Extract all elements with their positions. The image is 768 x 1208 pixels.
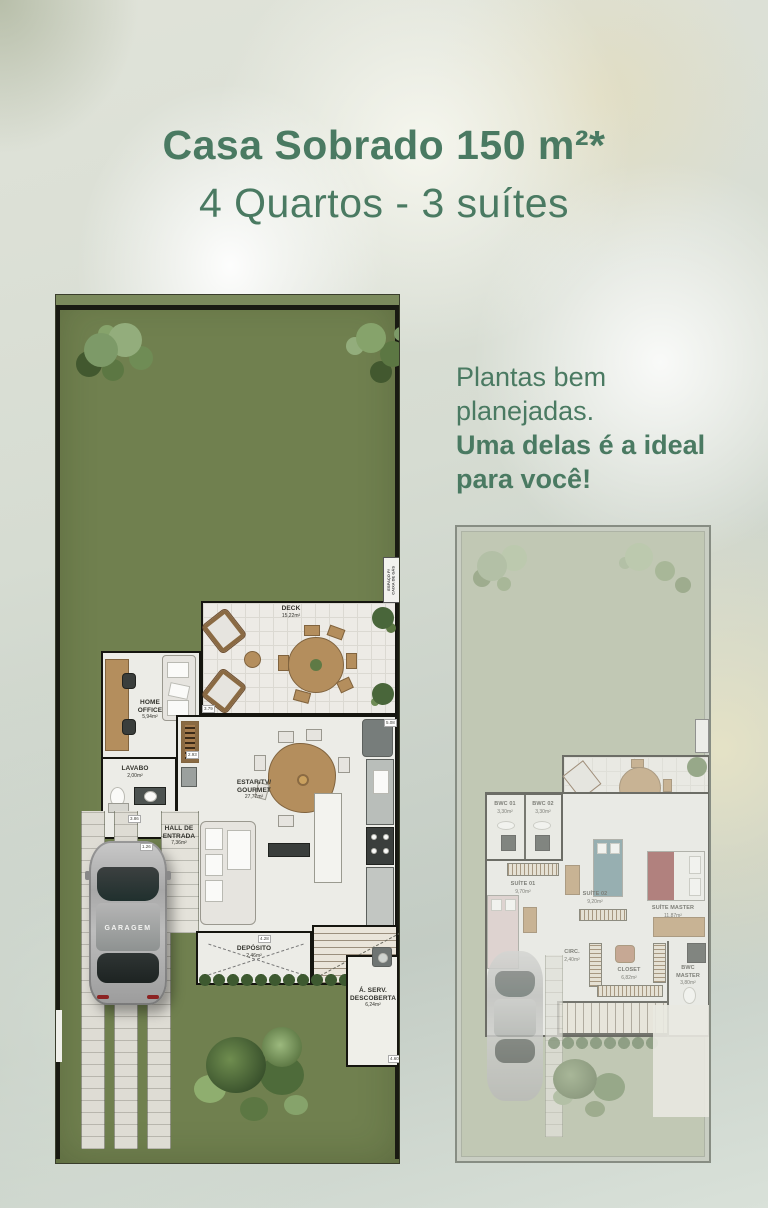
garden-cluster: [206, 1037, 266, 1093]
promo-line-4: para você!: [456, 462, 716, 496]
dimension: 3.86: [128, 815, 141, 823]
gate-opening: [56, 1010, 62, 1062]
area-servico: [346, 955, 399, 1067]
deck-chair: [304, 625, 320, 636]
stove: [366, 827, 394, 865]
lavabo-label: LAVABO 2,00m²: [106, 765, 164, 779]
office-chair: [122, 673, 136, 689]
dimension: 3.79: [202, 705, 215, 713]
garagem-label: GARAGEM: [89, 925, 167, 932]
dimension: 5.08: [384, 719, 397, 727]
dining-chair: [338, 757, 350, 773]
home-office-label: HOME OFFICE 5,94m²: [124, 699, 176, 720]
dimension: 4.60: [388, 1055, 400, 1063]
area-servico-label: Á. SERV. DESCOBERTA 6,24m²: [348, 987, 398, 1008]
kitchen-island: [314, 793, 342, 883]
kitchen-counter: [366, 759, 394, 825]
promo-line-3: Uma delas é a ideal: [456, 428, 716, 462]
deck-plant: [372, 607, 394, 629]
dimension: 4.28: [258, 935, 271, 943]
office-chair: [122, 719, 136, 735]
dining-chair: [278, 815, 294, 827]
washer: [372, 947, 392, 967]
title-line-regular: 4 Quartos - 3 suítes: [0, 180, 768, 227]
promo-line-1: Plantas bem: [456, 360, 716, 394]
ground-floor-plan: ESPAÇO P/ CAIXA DE GÁS DECK 15,22m²: [55, 294, 400, 1164]
page-title: Casa Sobrado 150 m²* 4 Quartos - 3 suíte…: [0, 122, 768, 227]
promo-line-2: planejadas.: [456, 394, 716, 428]
gas-box-label: ESPAÇO P/ CAIXA DE GÁS: [387, 566, 396, 595]
deck-plant: [372, 683, 394, 705]
deposito-label: DEPÓSITO 2,46m²: [216, 945, 292, 959]
garden-plant: [262, 1027, 302, 1067]
deck-side-table: [244, 651, 261, 668]
kitchen-counter: [366, 867, 394, 929]
car-top-view: GARAGEM: [89, 841, 167, 1005]
dining-chair: [278, 731, 294, 743]
plant-cluster: [356, 323, 386, 353]
promo-text: Plantas bem planejadas. Uma delas é a id…: [456, 360, 716, 496]
dining-chair: [254, 755, 266, 771]
tv-rack: [268, 843, 310, 857]
dimension: 1.26: [140, 843, 153, 851]
hall-label: HALL DE ENTRADA 7,36m²: [157, 825, 201, 846]
deck-chair: [346, 653, 357, 669]
living-label: ESTAR/TV/ GOURMET 27,77m²: [216, 779, 292, 800]
upper-floor-plan: BWC 01 3,30m² BWC 02 3,30m² SUÍTE 01 9,7…: [455, 525, 711, 1163]
deck-chair: [278, 655, 289, 671]
gas-box: ESPAÇO P/ CAIXA DE GÁS: [383, 557, 400, 603]
wall-top: [56, 305, 399, 310]
fade-overlay: [457, 527, 709, 1161]
lavabo-counter: [134, 787, 166, 805]
dimension: 2.93: [186, 751, 199, 759]
appliance: [181, 767, 197, 787]
plant-cluster: [84, 333, 118, 367]
living-sofa: [200, 821, 256, 925]
lot-top-margin: [56, 295, 399, 305]
deck-table-plant: [310, 659, 322, 671]
deck-label: DECK 15,22m²: [261, 605, 321, 619]
dining-chair: [306, 729, 322, 741]
hedge-row: [198, 973, 346, 987]
marketing-page: Casa Sobrado 150 m²* 4 Quartos - 3 suíte…: [0, 0, 768, 1208]
title-line-bold: Casa Sobrado 150 m²*: [0, 122, 768, 169]
